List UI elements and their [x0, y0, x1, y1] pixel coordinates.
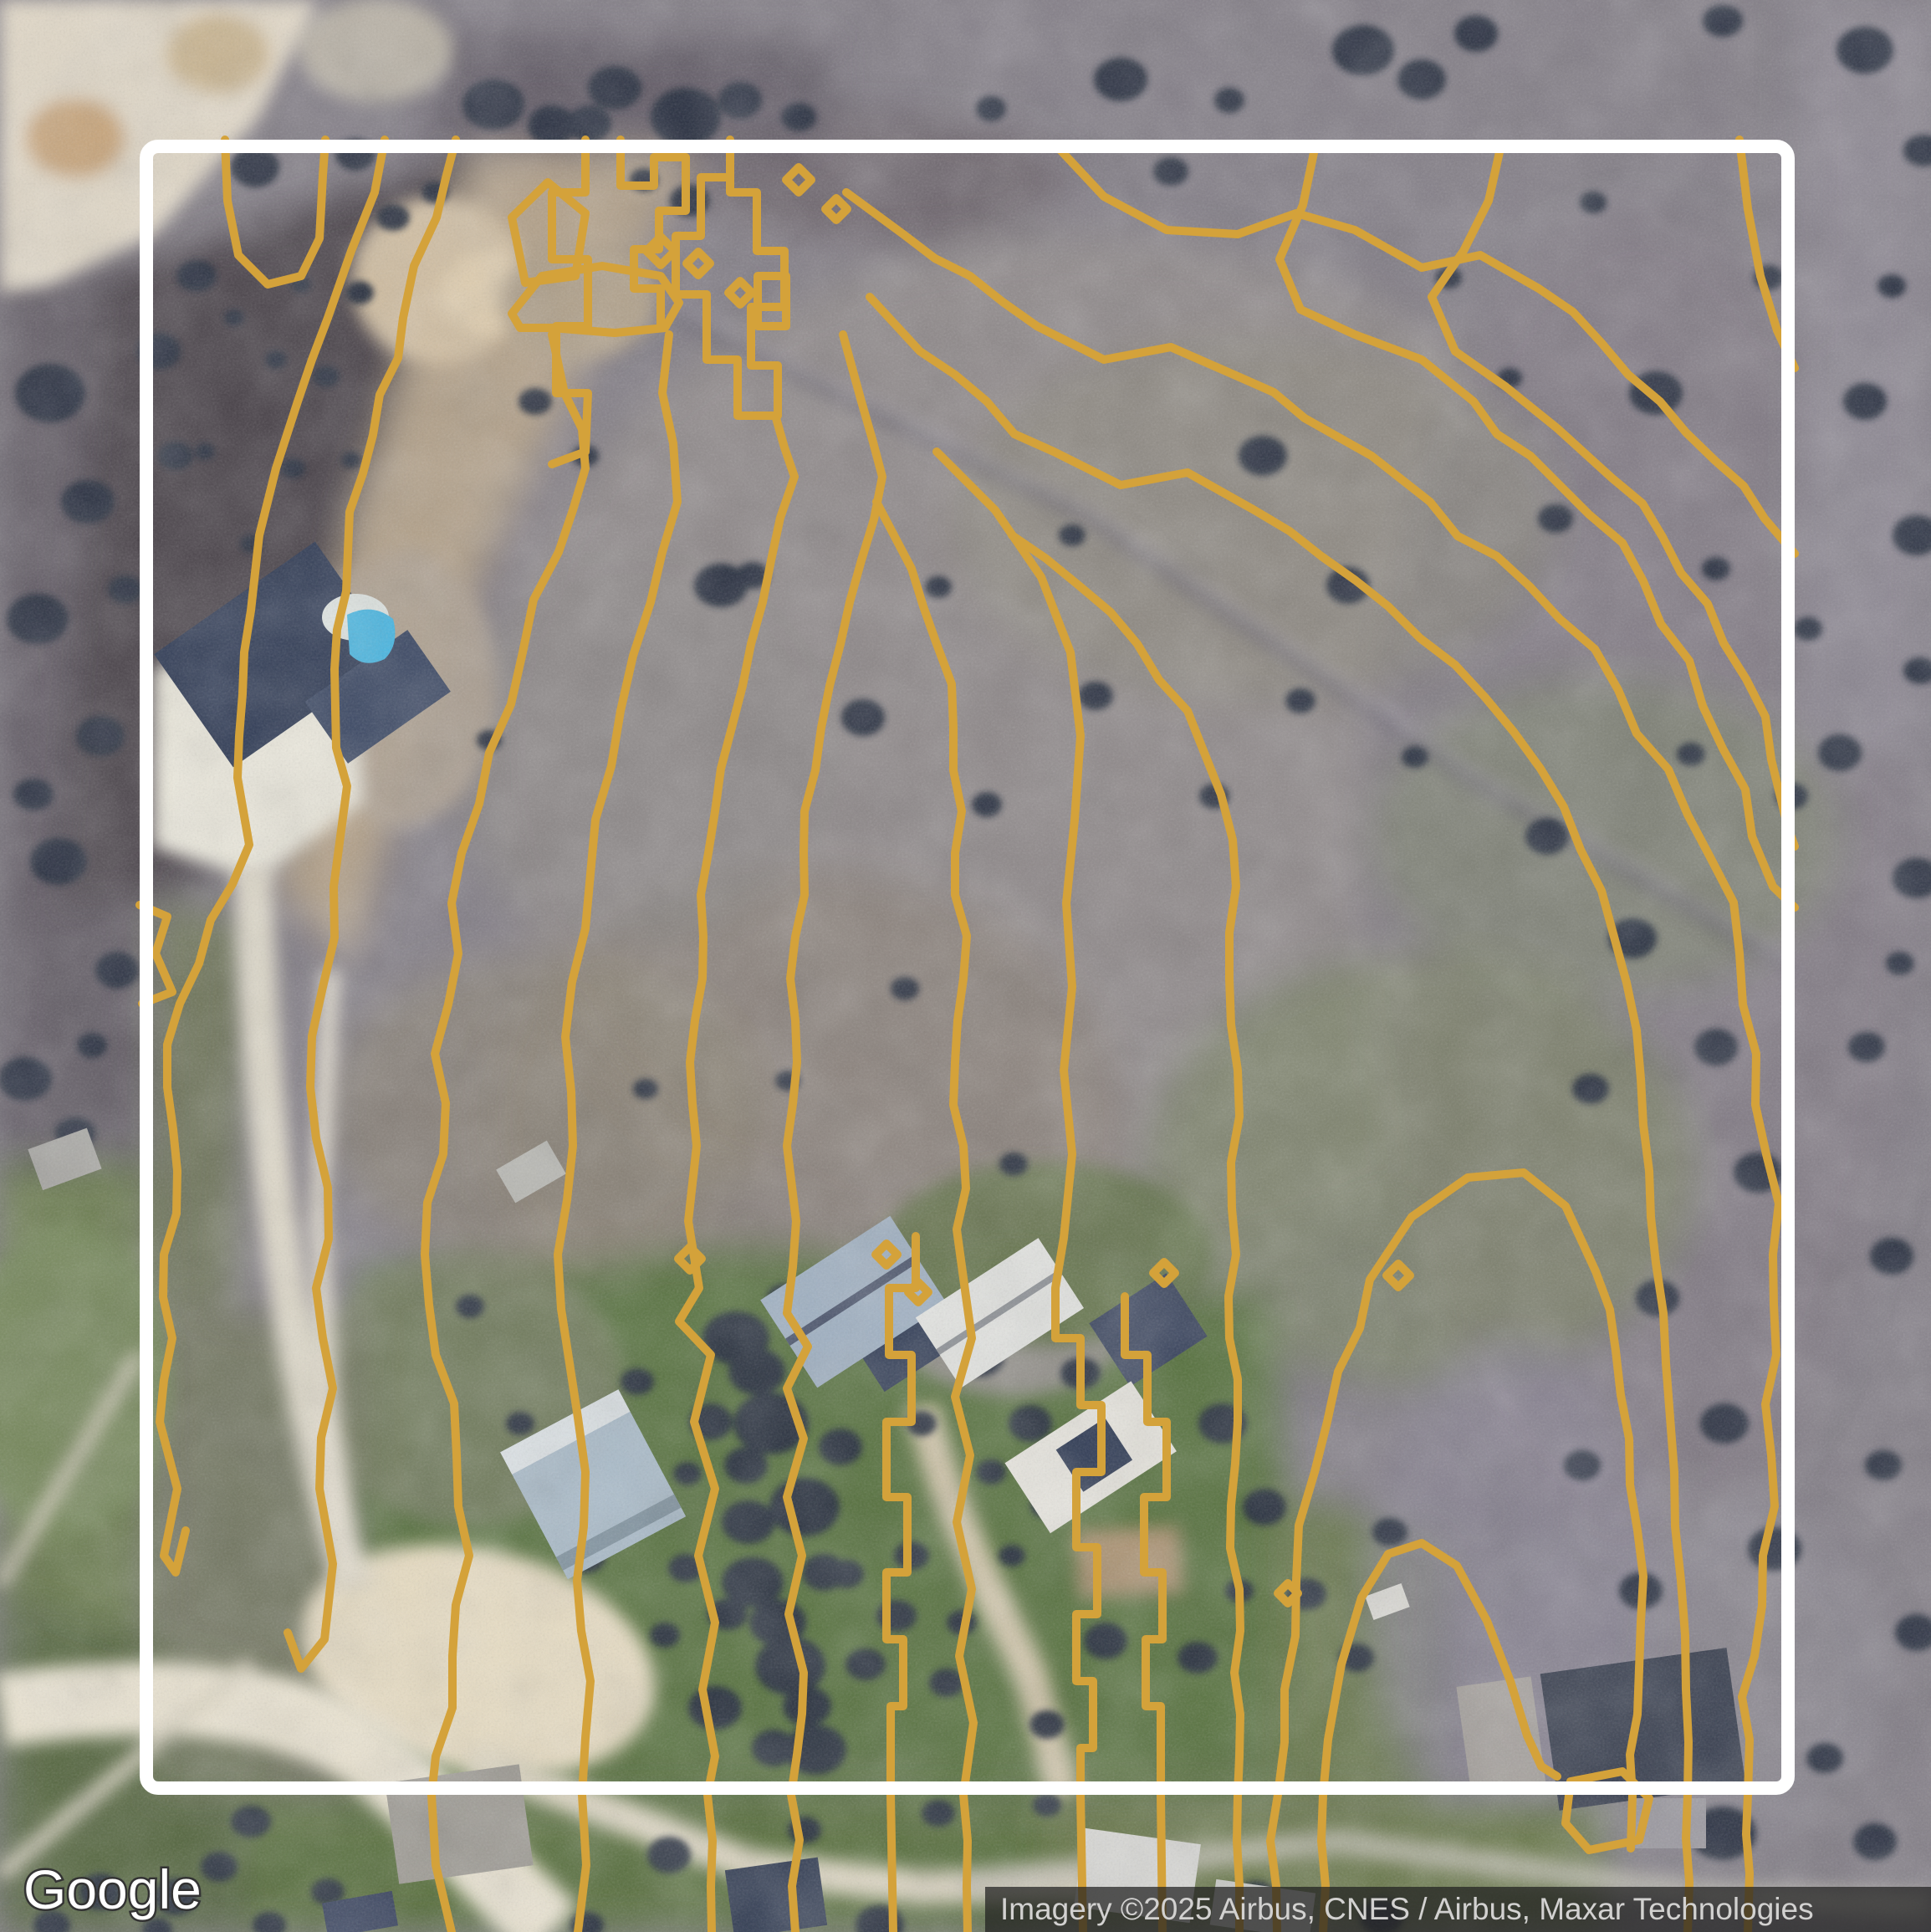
svg-text:Google: Google	[23, 1858, 202, 1920]
svg-text:Imagery ©2025 Airbus, CNES / A: Imagery ©2025 Airbus, CNES / Airbus, Max…	[1000, 1892, 1814, 1926]
